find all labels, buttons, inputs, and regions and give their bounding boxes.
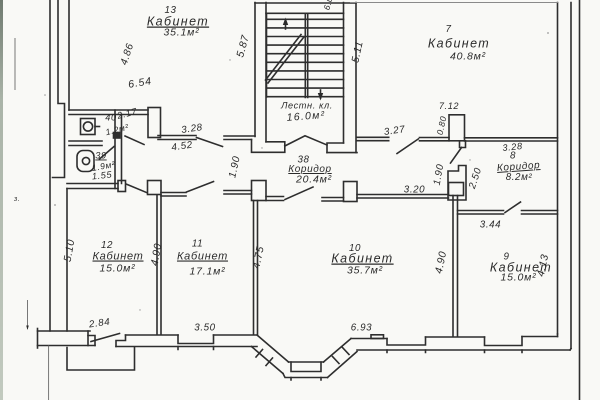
- svg-text:15.0м²: 15.0м²: [100, 263, 136, 275]
- svg-text:3.20: 3.20: [404, 185, 425, 196]
- svg-text:Кабинет: Кабинет: [331, 252, 393, 266]
- svg-text:Кабинет: Кабинет: [428, 37, 490, 51]
- svg-text:Кабинет: Кабинет: [177, 251, 228, 263]
- svg-text:40.8м²: 40.8м²: [450, 51, 486, 63]
- svg-text:39: 39: [95, 151, 106, 161]
- svg-text:15.0м²: 15.0м²: [501, 272, 537, 284]
- svg-text:з.: з.: [13, 196, 20, 203]
- svg-text:8.2м²: 8.2м²: [506, 172, 533, 183]
- svg-text:7.12: 7.12: [439, 101, 459, 111]
- svg-text:20.4м²: 20.4м²: [295, 174, 332, 186]
- svg-text:40: 40: [105, 113, 117, 123]
- svg-text:35.7м²: 35.7м²: [347, 265, 383, 277]
- svg-text:12: 12: [101, 240, 113, 251]
- svg-text:11: 11: [192, 239, 203, 250]
- svg-text:7: 7: [445, 24, 451, 35]
- svg-text:Кабинет: Кабинет: [92, 251, 143, 263]
- svg-text:17.1м²: 17.1м²: [190, 266, 226, 278]
- svg-text:8: 8: [510, 151, 516, 162]
- svg-text:1.55: 1.55: [91, 169, 113, 181]
- svg-text:6.93: 6.93: [351, 323, 372, 334]
- svg-text:3.50: 3.50: [194, 323, 215, 334]
- svg-text:3.44: 3.44: [480, 220, 501, 231]
- svg-text:35.1м²: 35.1м²: [164, 27, 200, 39]
